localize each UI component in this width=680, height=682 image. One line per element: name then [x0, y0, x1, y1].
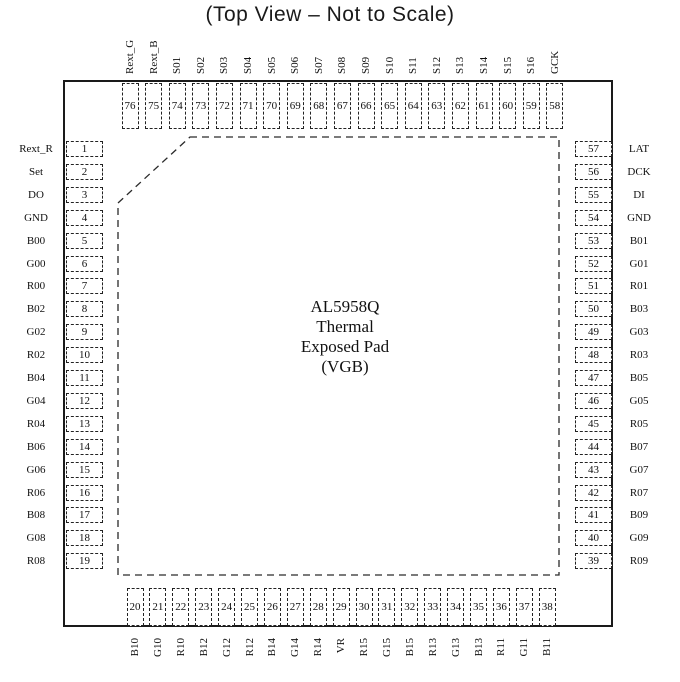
pin-box-32: 32 [401, 588, 418, 626]
pin-label-S16: S16 [524, 14, 538, 74]
pin-label-B06: B06 [8, 440, 64, 454]
pin-box-57: 57 [575, 141, 612, 157]
pin-label-B02: B02 [8, 302, 64, 316]
pin-box-53: 53 [575, 233, 612, 249]
pin-label-S10: S10 [383, 14, 397, 74]
pin-label-G03: G03 [611, 325, 667, 339]
pin-label-B09: B09 [611, 508, 667, 522]
pin-label-B12: B12 [197, 638, 211, 682]
pin-label-G06: G06 [8, 463, 64, 477]
pin-label-DO: DO [8, 188, 64, 202]
pin-box-43: 43 [575, 462, 612, 478]
pin-box-4: 4 [66, 210, 103, 226]
pin-label-GCK: GCK [548, 14, 562, 74]
pin-box-48: 48 [575, 347, 612, 363]
pin-box-42: 42 [575, 485, 612, 501]
pin-label-R14: R14 [311, 638, 325, 682]
pin-label-G14: G14 [288, 638, 302, 682]
pin-label-G05: G05 [611, 394, 667, 408]
pin-label-S01: S01 [170, 14, 184, 74]
pin-box-24: 24 [218, 588, 235, 626]
pin-label-B11: B11 [540, 638, 554, 682]
chip-name: AL5958Q [235, 297, 455, 317]
pin-box-8: 8 [66, 301, 103, 317]
pin-box-5: 5 [66, 233, 103, 249]
pin-label-G07: G07 [611, 463, 667, 477]
pin-label-G09: G09 [611, 531, 667, 545]
pin-label-G00: G00 [8, 257, 64, 271]
pin-box-2: 2 [66, 164, 103, 180]
pin-label-R09: R09 [611, 554, 667, 568]
pin-label-B14: B14 [265, 638, 279, 682]
pin-label-B00: B00 [8, 234, 64, 248]
pad-label-line: Thermal [235, 317, 455, 337]
pad-label-line: Exposed Pad [235, 337, 455, 357]
pin-box-31: 31 [378, 588, 395, 626]
pin-box-21: 21 [149, 588, 166, 626]
pin-label-G01: G01 [611, 257, 667, 271]
pin-box-10: 10 [66, 347, 103, 363]
pin-box-40: 40 [575, 530, 612, 546]
pin-box-22: 22 [172, 588, 189, 626]
pin-label-Rext_B: Rext_B [147, 14, 161, 74]
pin-box-49: 49 [575, 324, 612, 340]
pin-label-B13: B13 [472, 638, 486, 682]
pin-label-G12: G12 [220, 638, 234, 682]
pinout-diagram: (Top View – Not to Scale) AL5958Q Therma… [0, 0, 680, 682]
pin-label-GND: GND [8, 211, 64, 225]
pin-box-33: 33 [424, 588, 441, 626]
pin-box-26: 26 [264, 588, 281, 626]
pin-label-G15: G15 [380, 638, 394, 682]
pin-box-62: 62 [452, 83, 469, 129]
pin-label-B08: B08 [8, 508, 64, 522]
pin-label-R11: R11 [494, 638, 508, 682]
pin-label-DCK: DCK [611, 165, 667, 179]
pin-label-S12: S12 [430, 14, 444, 74]
pin-box-1: 1 [66, 141, 103, 157]
pin-label-R01: R01 [611, 279, 667, 293]
pin-box-55: 55 [575, 187, 612, 203]
pin-box-71: 71 [240, 83, 257, 129]
pin-label-S02: S02 [194, 14, 208, 74]
pin-box-72: 72 [216, 83, 233, 129]
pin-box-13: 13 [66, 416, 103, 432]
pin-box-39: 39 [575, 553, 612, 569]
pin-box-75: 75 [145, 83, 162, 129]
pin-box-17: 17 [66, 507, 103, 523]
pin-label-S08: S08 [335, 14, 349, 74]
pin-box-19: 19 [66, 553, 103, 569]
pin-box-34: 34 [447, 588, 464, 626]
pin-box-14: 14 [66, 439, 103, 455]
pin-label-B15: B15 [403, 638, 417, 682]
pin-label-GND: GND [611, 211, 667, 225]
pin-label-R12: R12 [243, 638, 257, 682]
pin-label-R15: R15 [357, 638, 371, 682]
pin-box-65: 65 [381, 83, 398, 129]
pin-label-DI: DI [611, 188, 667, 202]
pin-label-G11: G11 [517, 638, 531, 682]
pin-box-68: 68 [310, 83, 327, 129]
pin-label-G08: G08 [8, 531, 64, 545]
pin-box-9: 9 [66, 324, 103, 340]
pin-box-67: 67 [334, 83, 351, 129]
pin-box-46: 46 [575, 393, 612, 409]
pin-box-59: 59 [523, 83, 540, 129]
pin-box-6: 6 [66, 256, 103, 272]
pin-label-G13: G13 [449, 638, 463, 682]
pin-label-R00: R00 [8, 279, 64, 293]
pin-box-36: 36 [493, 588, 510, 626]
pin-label-B04: B04 [8, 371, 64, 385]
pin-box-76: 76 [122, 83, 139, 129]
pin-label-R04: R04 [8, 417, 64, 431]
pin-box-37: 37 [516, 588, 533, 626]
pin-label-R08: R08 [8, 554, 64, 568]
pin-box-3: 3 [66, 187, 103, 203]
pin-box-52: 52 [575, 256, 612, 272]
pin-box-73: 73 [192, 83, 209, 129]
pin-label-LAT: LAT [611, 142, 667, 156]
pin-label-Set: Set [8, 165, 64, 179]
pin-label-S14: S14 [477, 14, 491, 74]
pin-label-S07: S07 [312, 14, 326, 74]
pin-box-44: 44 [575, 439, 612, 455]
pin-label-B05: B05 [611, 371, 667, 385]
pin-box-74: 74 [169, 83, 186, 129]
pin-label-G02: G02 [8, 325, 64, 339]
pin-box-29: 29 [333, 588, 350, 626]
pin-box-20: 20 [127, 588, 144, 626]
pin-label-B07: B07 [611, 440, 667, 454]
pin-label-S03: S03 [217, 14, 231, 74]
pin-box-51: 51 [575, 278, 612, 294]
pin-box-30: 30 [356, 588, 373, 626]
pin-label-S09: S09 [359, 14, 373, 74]
pin-box-7: 7 [66, 278, 103, 294]
pin-label-S06: S06 [288, 14, 302, 74]
pin-label-S11: S11 [406, 14, 420, 74]
pin-label-G10: G10 [151, 638, 165, 682]
pin-label-S05: S05 [265, 14, 279, 74]
pin-box-50: 50 [575, 301, 612, 317]
pin-box-25: 25 [241, 588, 258, 626]
pin-box-38: 38 [539, 588, 556, 626]
pin-box-47: 47 [575, 370, 612, 386]
pin-label-R10: R10 [174, 638, 188, 682]
pin-label-VR: VR [334, 638, 348, 682]
pin-label-R06: R06 [8, 486, 64, 500]
pin-box-18: 18 [66, 530, 103, 546]
pin-box-66: 66 [358, 83, 375, 129]
pin-box-15: 15 [66, 462, 103, 478]
pin-box-16: 16 [66, 485, 103, 501]
diagram-title: (Top View – Not to Scale) [90, 3, 570, 27]
pin-label-B10: B10 [128, 638, 142, 682]
pin-box-41: 41 [575, 507, 612, 523]
pin-label-R03: R03 [611, 348, 667, 362]
pin-box-58: 58 [546, 83, 563, 129]
pin-box-35: 35 [470, 588, 487, 626]
pin-label-S04: S04 [241, 14, 255, 74]
pin-box-27: 27 [287, 588, 304, 626]
pin-label-S13: S13 [453, 14, 467, 74]
pin-label-R07: R07 [611, 486, 667, 500]
pin-label-B01: B01 [611, 234, 667, 248]
pin-label-R05: R05 [611, 417, 667, 431]
pin-label-Rext_G: Rext_G [123, 14, 137, 74]
pin-label-Rext_R: Rext_R [8, 142, 64, 156]
pin-box-28: 28 [310, 588, 327, 626]
pin-label-R02: R02 [8, 348, 64, 362]
pin-box-60: 60 [499, 83, 516, 129]
pin-box-12: 12 [66, 393, 103, 409]
pin-box-69: 69 [287, 83, 304, 129]
pin-box-70: 70 [263, 83, 280, 129]
thermal-pad-label: AL5958Q Thermal Exposed Pad (VGB) [235, 297, 455, 377]
pin-label-S15: S15 [501, 14, 515, 74]
pin-label-G04: G04 [8, 394, 64, 408]
pin-box-23: 23 [195, 588, 212, 626]
pin-box-11: 11 [66, 370, 103, 386]
pin-label-R13: R13 [426, 638, 440, 682]
pin-box-54: 54 [575, 210, 612, 226]
pin-box-45: 45 [575, 416, 612, 432]
pin-box-61: 61 [476, 83, 493, 129]
pin-label-B03: B03 [611, 302, 667, 316]
pad-label-line: (VGB) [235, 357, 455, 377]
pin-box-63: 63 [428, 83, 445, 129]
pin-box-64: 64 [405, 83, 422, 129]
pin-box-56: 56 [575, 164, 612, 180]
